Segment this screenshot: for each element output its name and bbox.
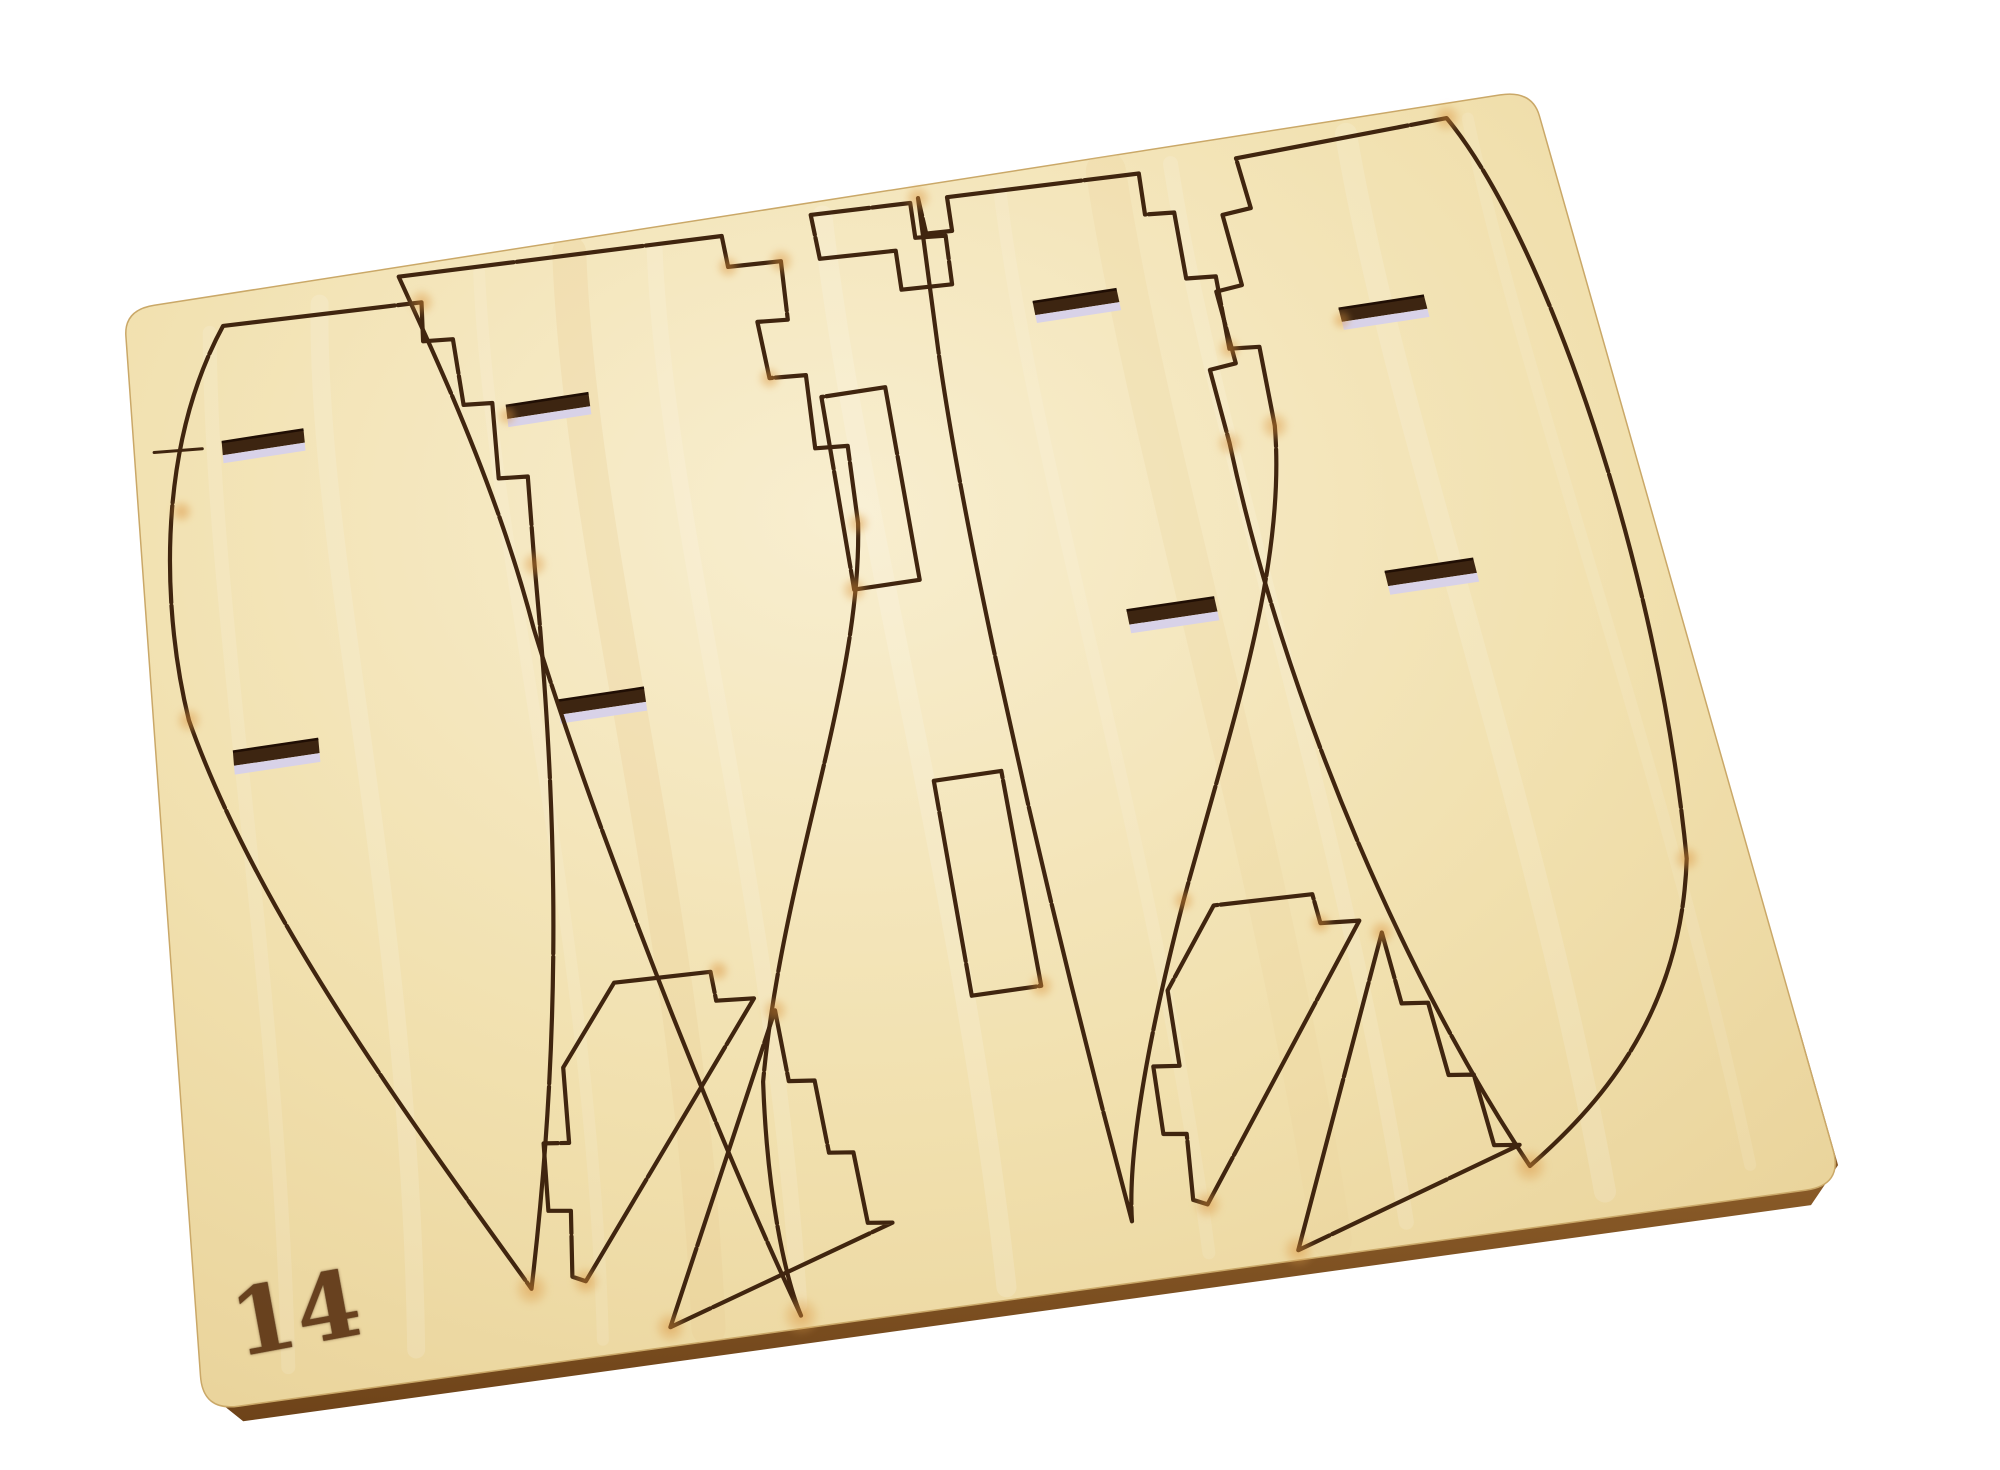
burn-mark-9 xyxy=(653,1310,688,1345)
burn-mark-3 xyxy=(767,247,796,276)
burn-mark-30 xyxy=(1330,309,1352,331)
burn-mark-6 xyxy=(169,499,195,525)
burn-mark-13 xyxy=(904,184,933,213)
burn-mark-26 xyxy=(1308,910,1334,936)
burn-mark-5 xyxy=(520,550,549,579)
burn-mark-22 xyxy=(1281,1233,1316,1268)
burn-mark-24 xyxy=(175,706,204,735)
burn-mark-10 xyxy=(780,1295,822,1337)
burn-mark-11 xyxy=(761,996,790,1025)
burn-mark-2 xyxy=(715,254,741,280)
burn-mark-16 xyxy=(1511,1147,1549,1185)
laser-cut-sheet-photo xyxy=(0,0,2000,1470)
burn-mark-4 xyxy=(757,365,783,391)
burn-mark-29 xyxy=(1215,429,1244,458)
burn-mark-18 xyxy=(1672,844,1701,873)
burn-mark-27 xyxy=(845,511,871,537)
burn-mark-7 xyxy=(512,1270,550,1308)
plywood-sheet-face xyxy=(126,94,1835,1407)
burn-mark-20 xyxy=(1027,971,1056,1000)
burn-mark-19 xyxy=(840,575,869,604)
burn-mark-28 xyxy=(1171,888,1197,914)
sheet-number-label: 14 xyxy=(224,1256,369,1370)
burn-mark-12 xyxy=(705,958,731,984)
burn-mark-1 xyxy=(407,288,436,317)
burn-mark-17 xyxy=(1431,102,1463,134)
burn-mark-23 xyxy=(1367,918,1396,947)
burn-mark-8 xyxy=(570,1265,602,1297)
burn-mark-21 xyxy=(1192,1188,1224,1220)
sheet-face xyxy=(126,94,1835,1407)
burn-mark-15 xyxy=(1217,336,1243,362)
burn-mark-14 xyxy=(1259,410,1291,442)
burn-mark-25 xyxy=(496,405,518,427)
photo-stage: 14 xyxy=(0,0,2000,1470)
